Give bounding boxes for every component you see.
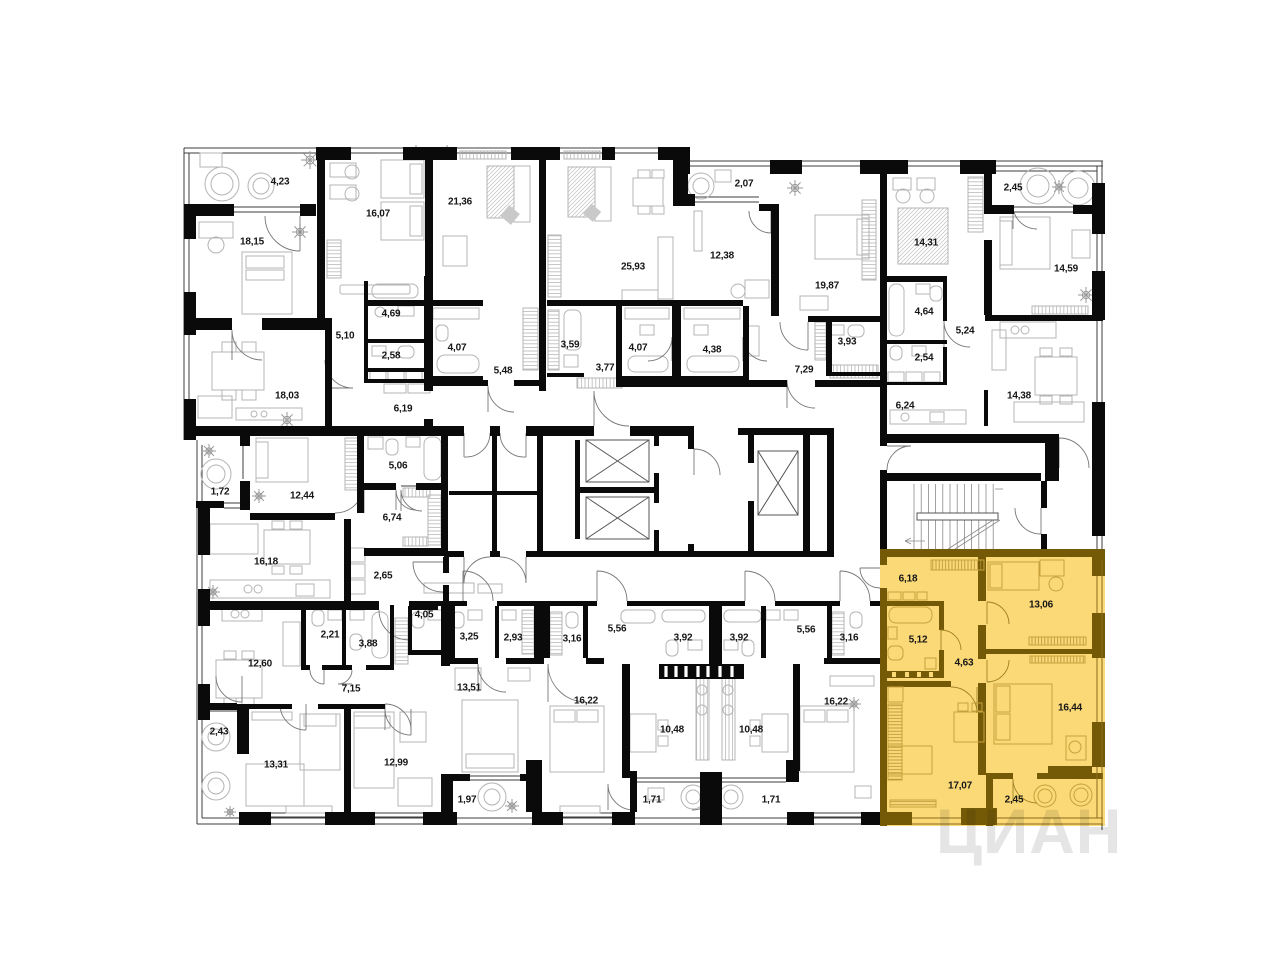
svg-text:2,07: 2,07 xyxy=(735,179,754,190)
svg-text:4,69: 4,69 xyxy=(382,309,401,320)
svg-text:6,74: 6,74 xyxy=(383,513,402,524)
svg-text:5,48: 5,48 xyxy=(494,366,513,377)
svg-text:2,58: 2,58 xyxy=(382,351,401,362)
svg-text:13,51: 13,51 xyxy=(457,683,482,694)
svg-text:5,24: 5,24 xyxy=(956,326,975,337)
svg-text:12,38: 12,38 xyxy=(710,251,735,262)
svg-text:7,29: 7,29 xyxy=(795,365,814,376)
svg-text:13,31: 13,31 xyxy=(264,760,289,771)
svg-text:7,15: 7,15 xyxy=(342,684,361,695)
svg-text:2,54: 2,54 xyxy=(915,353,934,364)
svg-text:12,44: 12,44 xyxy=(290,491,315,502)
svg-text:19,87: 19,87 xyxy=(815,281,840,292)
svg-text:4,07: 4,07 xyxy=(448,343,467,354)
svg-text:25,93: 25,93 xyxy=(621,262,646,273)
svg-text:16,07: 16,07 xyxy=(366,209,391,220)
svg-text:16,18: 16,18 xyxy=(254,557,279,568)
svg-text:12,60: 12,60 xyxy=(248,659,273,670)
svg-text:16,22: 16,22 xyxy=(824,697,849,708)
svg-text:3,92: 3,92 xyxy=(674,633,693,644)
svg-text:2,21: 2,21 xyxy=(321,630,340,641)
svg-text:1,72: 1,72 xyxy=(211,487,230,498)
svg-text:6,24: 6,24 xyxy=(896,401,915,412)
svg-text:4,63: 4,63 xyxy=(955,658,974,669)
svg-text:14,31: 14,31 xyxy=(914,238,939,249)
svg-text:4,38: 4,38 xyxy=(703,345,722,356)
svg-text:2,45: 2,45 xyxy=(1004,183,1023,194)
svg-text:14,59: 14,59 xyxy=(1054,264,1079,275)
svg-text:3,88: 3,88 xyxy=(359,639,378,650)
svg-text:10,48: 10,48 xyxy=(660,725,685,736)
svg-text:16,22: 16,22 xyxy=(574,696,599,707)
svg-text:6,19: 6,19 xyxy=(394,404,413,415)
svg-text:6,18: 6,18 xyxy=(899,574,918,585)
svg-text:3,92: 3,92 xyxy=(730,633,749,644)
svg-text:1,71: 1,71 xyxy=(762,795,781,806)
svg-text:3,16: 3,16 xyxy=(840,633,859,644)
svg-text:5,56: 5,56 xyxy=(797,625,816,636)
svg-text:4,64: 4,64 xyxy=(915,307,934,318)
svg-text:2,65: 2,65 xyxy=(374,571,393,582)
svg-text:17,07: 17,07 xyxy=(948,781,973,792)
svg-text:4,23: 4,23 xyxy=(271,177,290,188)
svg-text:2,43: 2,43 xyxy=(210,727,229,738)
svg-text:2,93: 2,93 xyxy=(504,633,523,644)
svg-text:ЦИАН: ЦИАН xyxy=(936,797,1122,867)
svg-text:18,15: 18,15 xyxy=(240,237,265,248)
svg-text:12,99: 12,99 xyxy=(384,758,409,769)
svg-text:1,97: 1,97 xyxy=(458,795,477,806)
svg-text:14,38: 14,38 xyxy=(1007,391,1032,402)
svg-text:3,77: 3,77 xyxy=(596,363,615,374)
svg-text:13,06: 13,06 xyxy=(1029,600,1054,611)
svg-text:4,05: 4,05 xyxy=(415,610,434,621)
svg-text:5,56: 5,56 xyxy=(608,624,627,635)
svg-text:5,10: 5,10 xyxy=(336,331,355,342)
svg-text:18,03: 18,03 xyxy=(275,391,300,402)
svg-text:3,25: 3,25 xyxy=(460,632,479,643)
svg-text:10,48: 10,48 xyxy=(739,725,764,736)
svg-text:3,93: 3,93 xyxy=(838,337,857,348)
svg-text:4,07: 4,07 xyxy=(629,343,648,354)
svg-text:21,36: 21,36 xyxy=(448,197,473,208)
svg-text:16,44: 16,44 xyxy=(1058,703,1083,714)
svg-text:5,12: 5,12 xyxy=(909,635,928,646)
svg-text:1,71: 1,71 xyxy=(643,795,662,806)
svg-text:5,06: 5,06 xyxy=(389,461,408,472)
svg-text:3,16: 3,16 xyxy=(563,634,582,645)
svg-text:3,59: 3,59 xyxy=(561,340,580,351)
